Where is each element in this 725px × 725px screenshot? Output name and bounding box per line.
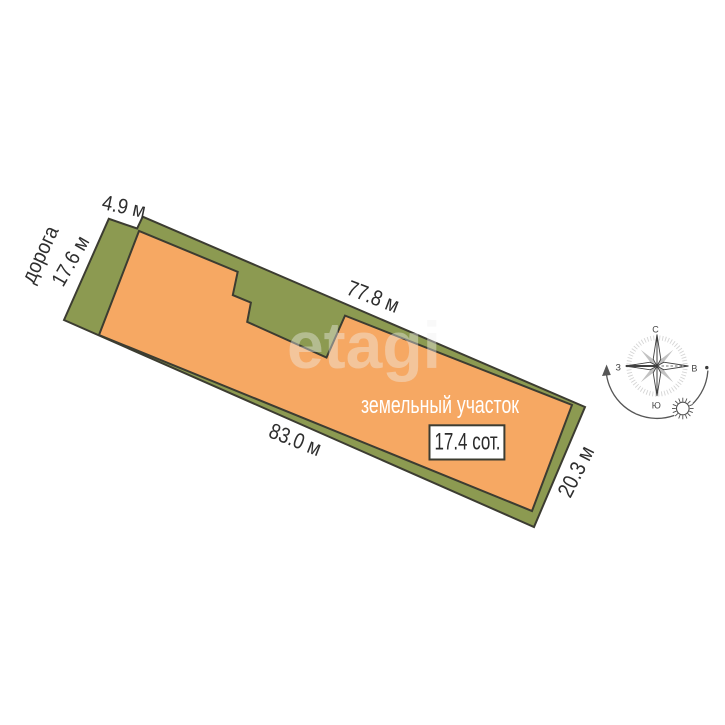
svg-text:В: В — [691, 363, 697, 373]
svg-text:З: З — [615, 362, 620, 372]
svg-text:17.4 сот.: 17.4 сот. — [435, 429, 501, 456]
svg-text:etagi: etagi — [287, 308, 441, 382]
svg-text:С: С — [652, 324, 659, 334]
svg-text:Ю: Ю — [652, 401, 661, 411]
svg-text:4.9 м: 4.9 м — [100, 191, 148, 223]
svg-text:земельный участок: земельный участок — [361, 392, 519, 419]
